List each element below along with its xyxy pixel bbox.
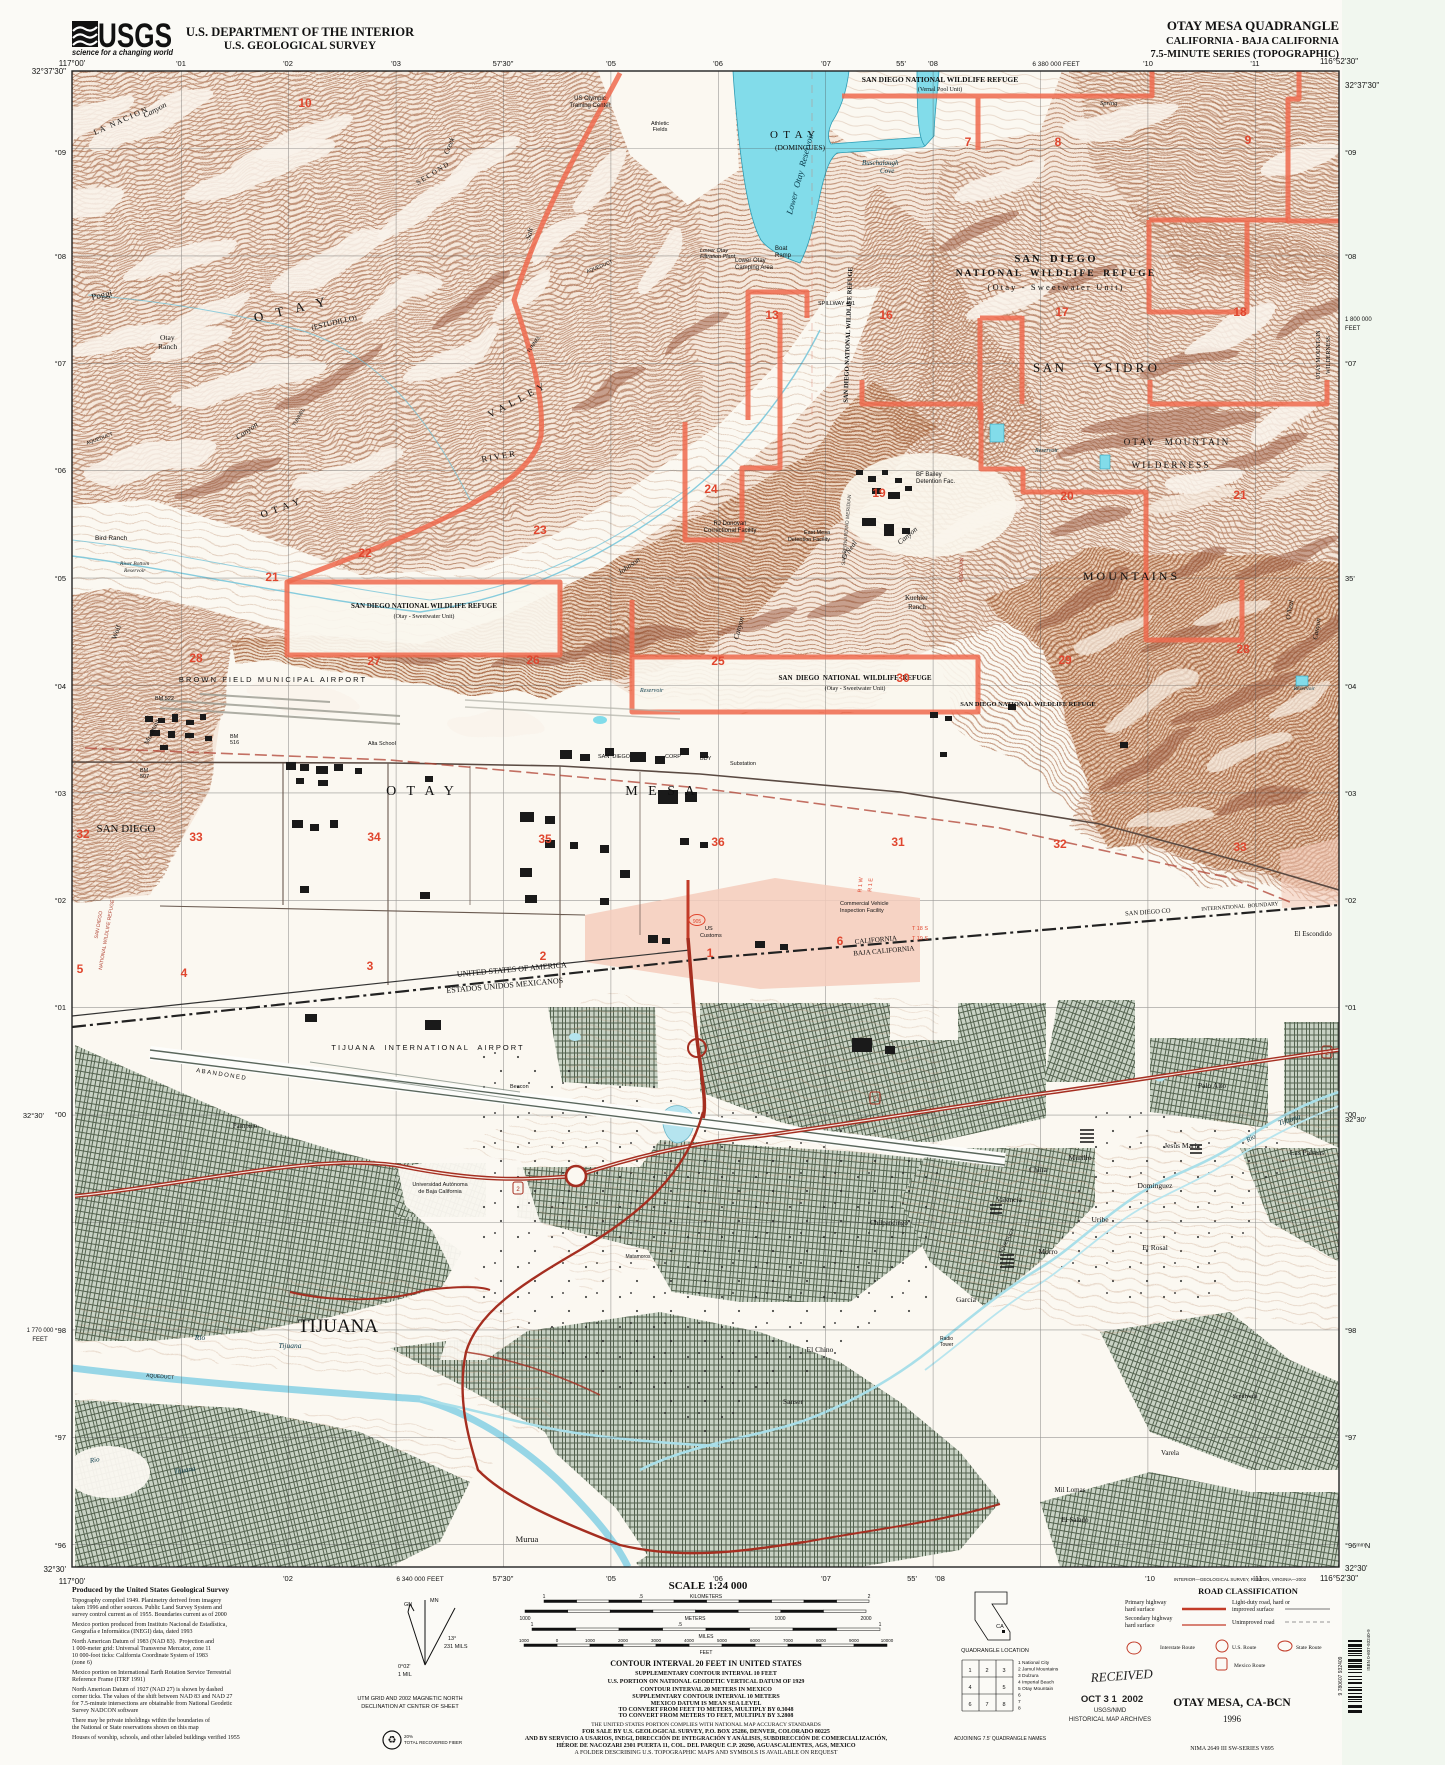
svg-text:NIMA 2649 III SW-SERIES V895: NIMA 2649 III SW-SERIES V895	[1190, 1746, 1274, 1752]
svg-text:T 18 S: T 18 S	[912, 926, 928, 932]
svg-text:1 MIL: 1 MIL	[398, 1672, 412, 1678]
svg-text:HÉROE DE NACOZARI 2301 PUERTA: HÉROE DE NACOZARI 2301 PUERTA 11, COL. D…	[556, 1741, 855, 1749]
svg-text:García: García	[956, 1295, 977, 1304]
svg-text:Spring: Spring	[1100, 100, 1118, 107]
svg-text:ISBN 0-607-93240-9: ISBN 0-607-93240-9	[1366, 1629, 1371, 1671]
svg-text:1: 1	[531, 1622, 534, 1628]
svg-text:ROAD CLASSIFICATION: ROAD CLASSIFICATION	[1198, 1586, 1299, 1596]
svg-text:S A N D I E G O: S A N D I E G O	[1014, 254, 1095, 265]
svg-text:science for a changing world: science for a changing world	[72, 47, 174, 57]
svg-text:Produced by the United States: Produced by the United States Geological…	[72, 1585, 229, 1594]
svg-text:32°30': 32°30'	[1345, 1564, 1368, 1573]
svg-text:1996: 1996	[1223, 1714, 1242, 1724]
svg-text:CONTOUR INTERVAL 20 METERS IN: CONTOUR INTERVAL 20 METERS IN MEXICO	[640, 1687, 772, 1693]
svg-text:MN: MN	[430, 1598, 439, 1604]
svg-text:HISTORICAL MAP ARCHIVES: HISTORICAL MAP ARCHIVES	[1069, 1717, 1151, 1723]
svg-text:QUADRANGLE LOCATION: QUADRANGLE LOCATION	[961, 1648, 1029, 1654]
svg-text:Light-duty road, hard or: Light-duty road, hard or	[1232, 1600, 1290, 1606]
svg-text:2000: 2000	[860, 1616, 871, 1622]
svg-text:10000: 10000	[881, 1638, 894, 1643]
svg-text:Las Palmas: Las Palmas	[1290, 1148, 1324, 1157]
svg-text:35: 35	[538, 832, 552, 846]
svg-text:6: 6	[1018, 1693, 1021, 1699]
svg-text:O T A Y M O U N T A I N: O T A Y M O U N T A I N	[1124, 437, 1229, 447]
svg-text:°04: °04	[55, 682, 66, 691]
svg-text:'03: '03	[391, 59, 401, 68]
svg-text:Rio: Rio	[194, 1333, 206, 1342]
svg-text:17: 17	[1055, 305, 1069, 319]
svg-text:°97: °97	[1345, 1433, 1356, 1442]
svg-text:Reservoir: Reservoir	[123, 568, 146, 574]
svg-text:OTAY MESA, CA-BCN: OTAY MESA, CA-BCN	[1173, 1697, 1291, 1709]
svg-text:116°52'30": 116°52'30"	[1320, 57, 1358, 66]
svg-text:RJ Donovan: RJ Donovan	[713, 521, 746, 527]
svg-text:China: China	[1029, 1165, 1048, 1174]
svg-text:Reservoir: Reservoir	[639, 688, 664, 694]
svg-text:1: 1	[968, 1668, 971, 1674]
svg-text:516: 516	[230, 740, 239, 746]
svg-text:'10: '10	[1145, 1574, 1155, 1583]
svg-text:4: 4	[968, 1685, 971, 1691]
svg-text:de Baja California: de Baja California	[418, 1189, 462, 1195]
svg-text:°09: °09	[1345, 148, 1356, 157]
svg-text:CORP: CORP	[665, 754, 681, 760]
svg-text:taken 1996 and other sources.: taken 1996 and other sources. Public Lan…	[72, 1605, 222, 1611]
svg-text:Lower Otay: Lower Otay	[735, 258, 766, 264]
svg-text:23: 23	[533, 523, 547, 537]
svg-text:4000: 4000	[684, 1638, 695, 1643]
svg-text:R 1 E: R 1 E	[867, 877, 874, 892]
svg-text:Geografía e Informática (INEGI: Geografía e Informática (INEGI) data, da…	[72, 1628, 192, 1635]
svg-text:Substation: Substation	[730, 761, 756, 767]
svg-text:Kuehler: Kuehler	[905, 594, 928, 602]
svg-text:U.S. GEOLOGICAL SURVEY: U.S. GEOLOGICAL SURVEY	[224, 40, 377, 52]
svg-text:Mil Lomas: Mil Lomas	[1055, 1486, 1086, 1494]
svg-text:8: 8	[1055, 135, 1062, 149]
svg-text:35': 35'	[1345, 574, 1355, 583]
svg-text:ADJOINING 7.5' QUADRANGLE NAME: ADJOINING 7.5' QUADRANGLE NAMES	[954, 1736, 1047, 1742]
svg-text:CA: CA	[996, 1624, 1004, 1630]
svg-text:survey control current as of 1: survey control current as of 1955. Bound…	[72, 1611, 227, 1618]
svg-text:32°37'30": 32°37'30"	[32, 67, 66, 76]
svg-text:Morro: Morro	[1038, 1247, 1057, 1256]
svg-text:Tower: Tower	[940, 1342, 954, 1348]
svg-text:°04: °04	[1345, 682, 1356, 691]
svg-text:7: 7	[1018, 1699, 1021, 1705]
svg-text:6000: 6000	[750, 1638, 761, 1643]
svg-text:Matamoros: Matamoros	[625, 1254, 651, 1260]
svg-text:El Chino: El Chino	[807, 1345, 834, 1354]
svg-text:Reservoir: Reservoir	[1293, 686, 1316, 692]
svg-text:4 Imperial Beach: 4 Imperial Beach	[1018, 1680, 1054, 1686]
svg-text:1: 1	[543, 1594, 546, 1600]
svg-text:Training Center: Training Center	[569, 103, 610, 109]
svg-text:31: 31	[891, 835, 905, 849]
svg-text:28: 28	[1236, 642, 1250, 656]
svg-text:Mexico Route: Mexico Route	[1234, 1663, 1266, 1669]
svg-text:Fields: Fields	[653, 127, 668, 133]
svg-text:WILDERNESS: WILDERNESS	[1326, 336, 1332, 374]
svg-text:North American Datum of 1927 (: North American Datum of 1927 (NAD 27) is…	[72, 1686, 223, 1693]
svg-text:1000: 1000	[774, 1616, 785, 1622]
svg-text:Otay: Otay	[160, 333, 175, 342]
svg-text:°07: °07	[1345, 359, 1356, 368]
svg-text:Detention Facility: Detention Facility	[788, 537, 830, 543]
svg-text:T 19 S: T 19 S	[912, 936, 928, 942]
svg-text:Filtration Plant: Filtration Plant	[700, 254, 736, 260]
svg-text:Topography compiled 1949. Plan: Topography compiled 1949. Planimetry der…	[72, 1597, 221, 1604]
svg-text:Sepúlveda: Sepúlveda	[1233, 1394, 1258, 1400]
svg-text:OTAY MOUNTAIN: OTAY MOUNTAIN	[1316, 330, 1322, 380]
svg-text:°07: °07	[55, 359, 66, 368]
svg-text:U.S. DEPARTMENT OF THE INTERIO: U.S. DEPARTMENT OF THE INTERIOR	[186, 25, 415, 39]
svg-text:corner ticks. The values of th: corner ticks. The values of the shift be…	[72, 1693, 232, 1700]
svg-text:507: 507	[140, 774, 149, 780]
svg-text:Alta School: Alta School	[368, 741, 396, 747]
svg-text:9 780607 932409: 9 780607 932409	[1338, 1656, 1344, 1695]
svg-text:32°30': 32°30'	[43, 1565, 66, 1574]
svg-text:3: 3	[367, 959, 374, 973]
svg-text:El Rosal: El Rosal	[1142, 1243, 1168, 1252]
svg-text:7000: 7000	[783, 1638, 794, 1643]
svg-text:°08: °08	[55, 252, 66, 261]
svg-text:BM 522: BM 522	[155, 696, 174, 702]
svg-text:°00: °00	[55, 1110, 66, 1119]
svg-text:57'30": 57'30"	[493, 59, 514, 68]
svg-text:O T A Y: O T A Y	[386, 784, 454, 799]
svg-text:8: 8	[1018, 1706, 1021, 1712]
svg-text:2: 2	[540, 949, 547, 963]
svg-text:26: 26	[526, 653, 540, 667]
svg-text:SCALE 1:24 000: SCALE 1:24 000	[669, 1580, 748, 1592]
svg-text:'02: '02	[283, 1574, 293, 1583]
svg-text:10: 10	[298, 96, 312, 110]
svg-text:25: 25	[711, 654, 725, 668]
svg-text:El Escondido: El Escondido	[1294, 930, 1332, 938]
svg-text:Palo Alto: Palo Alto	[1198, 1081, 1226, 1090]
svg-text:OTAY MESA QUADRANGLE: OTAY MESA QUADRANGLE	[1167, 18, 1339, 33]
svg-text:Secondary highway: Secondary highway	[1125, 1616, 1173, 1622]
svg-text:0°02': 0°02'	[398, 1664, 410, 1670]
svg-text:(zone 6): (zone 6)	[72, 1659, 92, 1666]
svg-text:9: 9	[1245, 133, 1252, 147]
svg-text:TIJUANA INTERNATIONAL AIRPOR: TIJUANA INTERNATIONAL AIRPORT	[331, 1043, 524, 1052]
svg-text:'07: '07	[821, 59, 831, 68]
svg-text:1000: 1000	[585, 1638, 596, 1643]
svg-text:Unimproved road: Unimproved road	[1232, 1620, 1275, 1626]
svg-text:'01: '01	[176, 59, 186, 68]
svg-text:CONTOUR INTERVAL 20 FEET IN UN: CONTOUR INTERVAL 20 FEET IN UNITED STATE…	[610, 1659, 802, 1668]
svg-text:°01: °01	[55, 1003, 66, 1012]
svg-text:Interstate Route: Interstate Route	[1160, 1645, 1196, 1651]
svg-text:SAN DIEGO NATIONAL WILDLIFE RE: SAN DIEGO NATIONAL WILDLIFE REFUGE	[862, 75, 1018, 84]
svg-text:1: 1	[707, 946, 714, 960]
svg-text:36: 36	[711, 835, 725, 849]
svg-text:.5: .5	[678, 1622, 682, 1628]
svg-text:East Mesa: East Mesa	[804, 530, 831, 536]
svg-text:El Salado: El Salado	[1061, 1516, 1089, 1524]
svg-text:°98: °98	[1345, 1326, 1356, 1335]
svg-text:1000: 1000	[519, 1638, 530, 1643]
svg-text:CALIFORNIA - BAJA CALIFORNIA: CALIFORNIA - BAJA CALIFORNIA	[1166, 36, 1339, 47]
svg-text:M E S A: M E S A	[625, 784, 696, 799]
svg-text:Ramp: Ramp	[775, 253, 792, 259]
svg-text:34: 34	[367, 830, 381, 844]
svg-text:M O U N T A I N S: M O U N T A I N S	[1083, 569, 1177, 583]
svg-text:Inspection Facility: Inspection Facility	[840, 908, 884, 914]
svg-text:Jesús María: Jesús María	[1164, 1141, 1200, 1150]
svg-text:9000: 9000	[849, 1638, 860, 1643]
svg-text:24: 24	[704, 482, 718, 496]
svg-text:32°37'30": 32°37'30"	[1345, 81, 1379, 90]
svg-text:Customs: Customs	[700, 933, 722, 939]
svg-text:US Olympic: US Olympic	[574, 96, 606, 102]
svg-text:Uribe: Uribe	[1091, 1215, 1109, 1224]
svg-text:'11: '11	[1250, 59, 1259, 68]
svg-text:2: 2	[868, 1594, 871, 1600]
svg-text:USGS/NMD: USGS/NMD	[1094, 1708, 1127, 1714]
svg-text:DECLINATION AT CENTER OF SHEET: DECLINATION AT CENTER OF SHEET	[361, 1704, 459, 1710]
svg-text:'06: '06	[713, 59, 723, 68]
svg-text:905: 905	[693, 919, 702, 925]
svg-text:the National or State reservat: the National or State reservations shown…	[72, 1725, 199, 1731]
svg-text:SAN DIEGO: SAN DIEGO	[97, 823, 156, 835]
svg-text:Dominguez: Dominguez	[1138, 1181, 1174, 1190]
svg-text:Beacon: Beacon	[510, 1084, 529, 1090]
svg-text:°03: °03	[1345, 789, 1356, 798]
svg-text:20%: 20%	[404, 1734, 413, 1739]
svg-text:°08: °08	[1345, 252, 1356, 261]
svg-text:KILOMETERS: KILOMETERS	[690, 1594, 723, 1600]
svg-text:6: 6	[968, 1702, 971, 1708]
svg-text:5: 5	[77, 962, 84, 976]
svg-text:6: 6	[837, 934, 844, 948]
svg-text:22: 22	[358, 546, 372, 560]
svg-text:There may be private inholding: There may be private inholdings within t…	[72, 1717, 210, 1724]
svg-text:Valencia: Valencia	[996, 1195, 1022, 1204]
svg-text:2 Jamul Mountains: 2 Jamul Mountains	[1018, 1667, 1059, 1673]
svg-text:13°: 13°	[448, 1636, 456, 1642]
svg-text:8: 8	[1002, 1702, 1005, 1708]
svg-text:°06: °06	[55, 466, 66, 475]
svg-text:55': 55'	[907, 1574, 917, 1583]
svg-text:'02: '02	[283, 59, 293, 68]
svg-text:Houses of worship, schools, an: Houses of worship, schools, and other la…	[72, 1734, 240, 1741]
svg-text:30: 30	[896, 671, 910, 685]
svg-text:°98: °98	[55, 1326, 66, 1335]
svg-text:231 MILS: 231 MILS	[444, 1644, 468, 1650]
svg-text:1 800 000: 1 800 000	[1345, 317, 1372, 323]
svg-text:INTERIOR—GEOLOGICAL SURVEY, RE: INTERIOR—GEOLOGICAL SURVEY, RESTON, VIRG…	[1174, 1577, 1307, 1582]
svg-text:THE UNITED STATES PORTION COMP: THE UNITED STATES PORTION COMPLIES WITH …	[591, 1722, 821, 1728]
svg-text:♻: ♻	[388, 1735, 397, 1746]
svg-text:32: 32	[76, 827, 90, 841]
svg-text:AND BY SERVICIO A USARIOS, INE: AND BY SERVICIO A USARIOS, INEGI, DIRECC…	[525, 1734, 888, 1742]
svg-text:28: 28	[189, 651, 203, 665]
svg-text:BF Bailey: BF Bailey	[916, 472, 942, 478]
svg-text:SUPPLEMENTARY CONTOUR INTERVAL: SUPPLEMENTARY CONTOUR INTERVAL 10 FEET	[635, 1671, 777, 1677]
svg-text:Boat: Boat	[775, 246, 788, 252]
svg-text:State Route: State Route	[1296, 1645, 1322, 1651]
svg-text:6 340 000 FEET: 6 340 000 FEET	[396, 1576, 443, 1583]
svg-text:3 Dulzura: 3 Dulzura	[1018, 1673, 1039, 1679]
svg-text:7.5-MINUTE SERIES (TOPOGRAPHIC: 7.5-MINUTE SERIES (TOPOGRAPHIC)	[1150, 49, 1339, 60]
svg-text:7: 7	[965, 135, 972, 149]
svg-text:19: 19	[872, 486, 886, 500]
svg-text:Murua: Murua	[516, 1534, 539, 1544]
svg-text:°02: °02	[55, 896, 66, 905]
svg-text:°96: °96	[55, 1541, 66, 1550]
svg-text:BDY: BDY	[700, 756, 712, 762]
svg-text:SAN DIEGO NATIONAL WILDLIFE RE: SAN DIEGO NATIONAL WILDLIFE REFUGE	[351, 602, 497, 610]
svg-text:3000: 3000	[651, 1638, 662, 1643]
svg-text:Ranch: Ranch	[908, 603, 926, 611]
svg-text:1: 1	[879, 1622, 882, 1628]
svg-text:S A N Y S I D R O: S A N Y S I D R O	[1033, 360, 1157, 375]
svg-text:SUPPLEMNTARY CONTOUR INTERVAL: SUPPLEMNTARY CONTOUR INTERVAL 10 METERS	[632, 1694, 780, 1700]
svg-text:Buschalaugh: Buschalaugh	[862, 159, 899, 167]
svg-text:improved surface: improved surface	[1232, 1606, 1274, 1613]
svg-text:32°30': 32°30'	[23, 1111, 45, 1120]
svg-text:Camping Area: Camping Area	[735, 265, 774, 271]
svg-text:Primary highway: Primary highway	[1125, 1600, 1167, 1606]
svg-text:33: 33	[189, 830, 203, 844]
svg-text:Varela: Varela	[1161, 1449, 1180, 1457]
svg-text:FEET: FEET	[32, 1337, 48, 1343]
svg-text:5: 5	[1002, 1685, 1005, 1691]
svg-text:OCT 3 1 2002: OCT 3 1 2002	[1081, 1694, 1143, 1705]
svg-text:Bird Ranch: Bird Ranch	[95, 535, 128, 542]
svg-text:2: 2	[985, 1668, 988, 1674]
svg-text:Mexico portion on Internationa: Mexico portion on International Earth Ro…	[72, 1670, 231, 1676]
svg-text:Sanser: Sanser	[783, 1397, 803, 1406]
svg-text:N A T I O N A L W I L D L I: N A T I O N A L W I L D L I F E R E F U …	[956, 269, 1154, 279]
svg-text:FEET: FEET	[700, 1650, 713, 1656]
svg-text:21: 21	[1233, 488, 1247, 502]
svg-text:UTM GRID AND 2002 MAGNETIC NOR: UTM GRID AND 2002 MAGNETIC NORTH	[357, 1696, 462, 1702]
svg-text:TO CONVERT FROM METERS TO FEET: TO CONVERT FROM METERS TO FEET, MULTIPLY…	[619, 1713, 794, 1719]
svg-text:°96ᵐᵐN: °96ᵐᵐN	[1345, 1541, 1370, 1550]
svg-text:SAN DIEGO: SAN DIEGO	[598, 754, 631, 760]
svg-text:Ranch: Ranch	[158, 342, 177, 351]
svg-text:°01: °01	[1345, 1003, 1356, 1012]
svg-text:5 Otay Mountain: 5 Otay Mountain	[1018, 1686, 1054, 1692]
svg-text:U.S. PORTION ON NATIONAL GEODE: U.S. PORTION ON NATIONAL GEODETIC VERTIC…	[608, 1679, 805, 1685]
svg-text:7: 7	[985, 1702, 988, 1708]
svg-text:GN: GN	[404, 1602, 412, 1608]
svg-text:Chilpancingo: Chilpancingo	[870, 1219, 908, 1227]
svg-text:Reference Frame (ITRF 1991): Reference Frame (ITRF 1991)	[72, 1676, 145, 1683]
svg-text:Survey NADCON software: Survey NADCON software	[72, 1707, 139, 1714]
svg-text:TIJUANA: TIJUANA	[298, 1316, 378, 1337]
svg-text:'07: '07	[821, 1574, 831, 1583]
svg-text:B R O W N F I E L D M U N: B R O W N F I E L D M U N I C I P A L A …	[179, 675, 366, 684]
svg-text:'08: '08	[928, 59, 938, 68]
svg-text:20: 20	[1060, 489, 1074, 503]
svg-text:32°30': 32°30'	[1345, 1115, 1367, 1124]
svg-text:°02: °02	[1345, 896, 1356, 905]
svg-text:'05: '05	[606, 59, 616, 68]
svg-text:1 000-meter grid: Universal Tr: 1 000-meter grid: Universal Transverse M…	[72, 1646, 211, 1652]
svg-text:18: 18	[1233, 305, 1247, 319]
svg-text:MERIDIAN: MERIDIAN	[959, 557, 966, 582]
svg-text:(Vernal Pool Unit): (Vernal Pool Unit)	[918, 86, 962, 93]
svg-text:Tijuana: Tijuana	[279, 1341, 302, 1350]
svg-text:North American Datum of 1983 (: North American Datum of 1983 (NAD 83). P…	[72, 1638, 214, 1645]
svg-text:Detention Fac.: Detention Fac.	[916, 479, 955, 485]
svg-text:A FOLDER DESCRIBING U.S. TOPOG: A FOLDER DESCRIBING U.S. TOPOGRAPHIC MAP…	[574, 1750, 837, 1756]
svg-text:MILES: MILES	[698, 1634, 714, 1640]
svg-text:Universidad Autónoma: Universidad Autónoma	[412, 1182, 468, 1188]
svg-text:.5: .5	[639, 1594, 643, 1600]
svg-text:hard surface: hard surface	[1125, 1622, 1155, 1629]
svg-text:1 National City: 1 National City	[1018, 1660, 1050, 1666]
svg-text:1000: 1000	[519, 1616, 530, 1622]
svg-text:5000: 5000	[717, 1638, 728, 1643]
svg-text:°03: °03	[55, 789, 66, 798]
svg-text:Pampico: Pampico	[233, 1122, 258, 1130]
svg-text:( O t a y - S w e e t w a: ( O t a y - S w e e t w a t e r U n i t …	[987, 282, 1122, 292]
svg-text:(Otay - Sweetwater Unit): (Otay - Sweetwater Unit)	[825, 685, 886, 692]
svg-text:2000: 2000	[618, 1638, 629, 1643]
svg-text:'05: '05	[606, 1574, 616, 1583]
svg-text:10 000-foot ticks: California: 10 000-foot ticks: California Coordinate…	[72, 1652, 208, 1659]
svg-text:SAN DIEGO NATIONAL WILDLIFE RE: SAN DIEGO NATIONAL WILDLIFE REFUGE	[960, 701, 1096, 708]
svg-text:METERS: METERS	[685, 1616, 707, 1622]
svg-text:4: 4	[181, 966, 188, 980]
svg-text:3: 3	[1002, 1668, 1005, 1674]
svg-text:Murillo: Murillo	[1069, 1153, 1092, 1162]
svg-text:16: 16	[879, 308, 893, 322]
svg-text:W I L D E R N E S S: W I L D E R N E S S	[1132, 460, 1209, 470]
svg-text:8000: 8000	[816, 1638, 827, 1643]
svg-text:Reservoir: Reservoir	[1034, 448, 1059, 454]
svg-text:29: 29	[1058, 653, 1072, 667]
svg-text:'08: '08	[935, 1574, 945, 1583]
svg-text:33: 33	[1233, 840, 1247, 854]
svg-text:13: 13	[765, 308, 779, 322]
svg-text:'10: '10	[1143, 59, 1153, 68]
svg-text:River Bottom: River Bottom	[119, 561, 149, 567]
svg-text:(Otay - Sweetwater Unit): (Otay - Sweetwater Unit)	[394, 613, 455, 620]
svg-text:Mexico portion produced from I: Mexico portion produced from Instituto N…	[72, 1621, 227, 1628]
svg-text:6 380 000 FEET: 6 380 000 FEET	[1032, 61, 1079, 68]
svg-text:hard surface: hard surface	[1125, 1606, 1155, 1613]
svg-text:27: 27	[367, 654, 381, 668]
svg-text:FOR SALE BY U.S. GEOLOGICAL SU: FOR SALE BY U.S. GEOLOGICAL SURVEY, P.O.…	[582, 1729, 830, 1735]
svg-text:°09: °09	[55, 148, 66, 157]
svg-text:FEET: FEET	[1345, 326, 1361, 332]
svg-text:U.S. Route: U.S. Route	[1232, 1645, 1257, 1651]
svg-text:Cove: Cove	[880, 167, 894, 175]
svg-text:21: 21	[265, 570, 279, 584]
svg-text:for 7.5-minute intersections a: for 7.5-minute intersections are obtaina…	[72, 1700, 233, 1707]
svg-text:57'30": 57'30"	[493, 1574, 514, 1583]
svg-text:116°52'30": 116°52'30"	[1320, 1574, 1358, 1583]
svg-text:32: 32	[1053, 837, 1067, 851]
svg-text:Commercial Vehicle: Commercial Vehicle	[840, 901, 889, 907]
svg-text:TOTAL RECOVERED FIBER: TOTAL RECOVERED FIBER	[404, 1740, 463, 1745]
svg-text:Correctional Facility: Correctional Facility	[704, 528, 757, 534]
svg-text:1 770 000: 1 770 000	[27, 1328, 54, 1334]
svg-text:°97: °97	[55, 1433, 66, 1442]
svg-text:55': 55'	[896, 59, 906, 68]
svg-text:US: US	[705, 926, 713, 932]
